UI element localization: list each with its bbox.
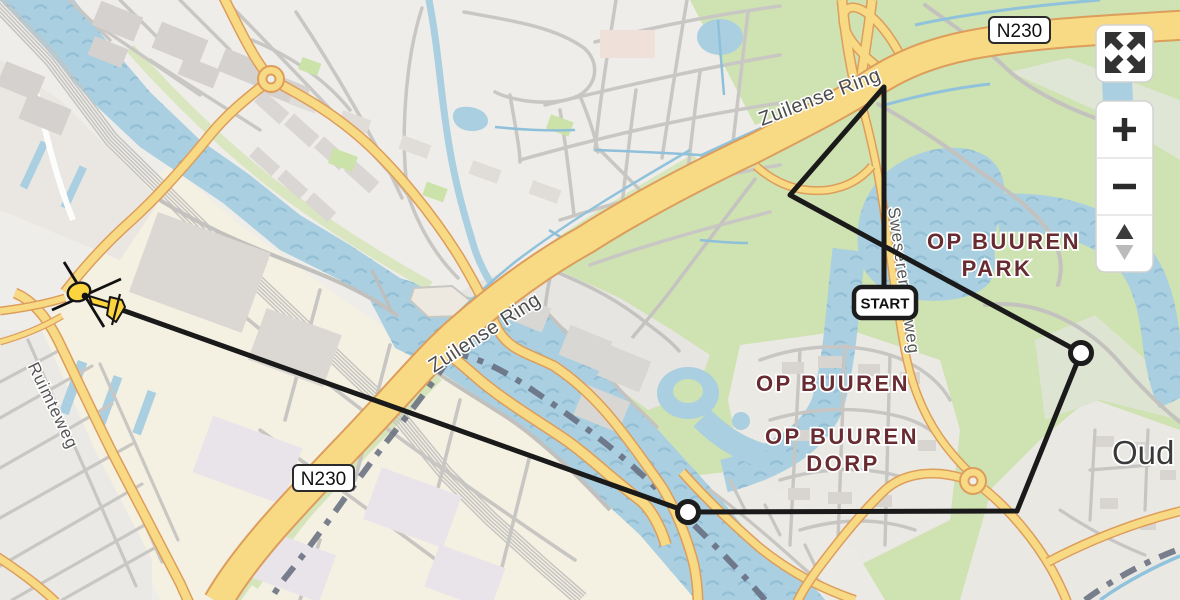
svg-text:Oud: Oud (1112, 434, 1174, 471)
svg-text:DORP: DORP (806, 451, 880, 476)
svg-text:OP BUUREN: OP BUUREN (756, 371, 910, 396)
svg-text:START: START (861, 296, 910, 313)
svg-text:OP BUUREN: OP BUUREN (927, 229, 1081, 254)
svg-text:N230: N230 (997, 21, 1042, 42)
svg-text:PARK: PARK (962, 256, 1033, 281)
svg-text:OP BUUREN: OP BUUREN (765, 424, 919, 449)
svg-text:N230: N230 (301, 469, 346, 490)
